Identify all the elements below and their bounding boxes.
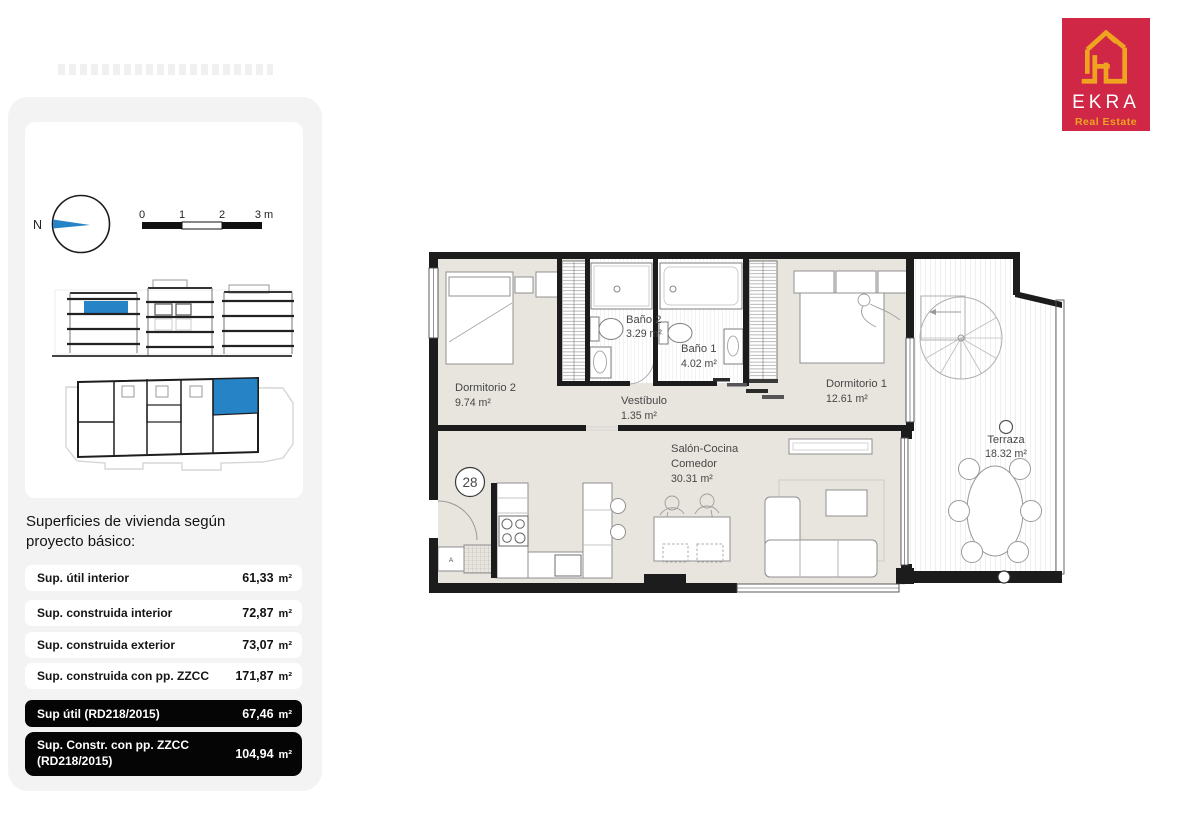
label-salon: Salón-Cocina — [671, 443, 739, 455]
svg-text:1.35 m²: 1.35 m² — [621, 410, 657, 422]
brand-name: EKRA — [1072, 92, 1140, 114]
terrace-marker — [1000, 421, 1013, 434]
headboard-cabinet — [794, 271, 834, 293]
svg-text:1: 1 — [179, 209, 185, 221]
building-elevation — [52, 280, 294, 356]
surface-row: Sup. útil interior 61,33m² — [25, 565, 302, 591]
cabinet — [536, 272, 559, 297]
console-table — [789, 439, 872, 454]
svg-text:4.02 m²: 4.02 m² — [681, 358, 717, 370]
svg-text:3 m: 3 m — [255, 209, 273, 221]
oven — [555, 555, 581, 576]
faint-watermark — [58, 64, 273, 75]
label-closet: A — [449, 557, 454, 564]
brand-tagline: Real Estate — [1075, 116, 1137, 128]
shower — [591, 263, 652, 309]
svg-text:2: 2 — [219, 209, 225, 221]
elevation-highlight-unit — [84, 301, 128, 314]
svg-text:28: 28 — [462, 475, 477, 490]
label-dorm2: Dormitorio 2 — [455, 382, 516, 394]
ekra-logo: EKRA Real Estate — [1062, 18, 1150, 131]
label-vestibulo: Vestíbulo — [621, 395, 667, 407]
toilet — [590, 317, 599, 341]
surface-row: Sup. construida con pp. ZZCC 171,87m² — [25, 663, 302, 689]
compass-n-label: N — [33, 218, 42, 232]
stool — [611, 525, 626, 540]
surface-row: Sup. construida interior 72,87m² — [25, 600, 302, 626]
compass-needle — [53, 220, 90, 229]
surface-row: Sup. construida exterior 73,07m² — [25, 632, 302, 658]
surface-row-official: Sup útil (RD218/2015) 67,46m² — [25, 700, 302, 727]
stool — [611, 499, 626, 514]
plan-key-card: N 0 1 2 3 m — [25, 122, 303, 498]
label-terraza: Terraza — [987, 434, 1025, 446]
svg-text:30.31 m²: 30.31 m² — [671, 473, 713, 485]
svg-text:3.29 m²: 3.29 m² — [626, 328, 662, 340]
ekra-house-icon — [1078, 26, 1134, 88]
scale-bar: 0 1 2 3 m — [139, 209, 273, 229]
svg-text:9.74 m²: 9.74 m² — [455, 397, 491, 409]
terrace-gate-pivot — [998, 571, 1010, 583]
svg-text:18.32 m²: 18.32 m² — [985, 448, 1027, 460]
laundry-unit — [464, 545, 494, 573]
page: N 0 1 2 3 m — [0, 0, 1200, 840]
svg-text:0: 0 — [139, 209, 145, 221]
svg-text:12.61 m²: 12.61 m² — [826, 393, 868, 405]
surface-row-official: Sup. Constr. con pp. ZZCC (RD218/2015) 1… — [25, 732, 302, 776]
nightstand — [515, 277, 533, 293]
coffee-table — [826, 490, 867, 516]
compass: N — [33, 196, 110, 253]
label-dorm1: Dormitorio 1 — [826, 378, 887, 390]
bed-double — [800, 293, 884, 363]
label-bano2: Baño 2 — [626, 314, 661, 326]
svg-text:Comedor: Comedor — [671, 458, 717, 470]
dining-table — [654, 517, 730, 561]
keyplan-highlight-unit — [213, 378, 258, 415]
surfaces-heading: Superficies de vivienda según proyecto b… — [26, 512, 266, 553]
dorm1-sliding-door — [746, 389, 768, 393]
bano1-sliding-door — [713, 378, 730, 382]
floorplan: 28 Dormitorio 2 9.74 m² Baño 2 3.29 m² B… — [425, 242, 1075, 602]
info-panel: N 0 1 2 3 m — [8, 97, 322, 791]
label-bano1: Baño 1 — [681, 343, 716, 355]
kitchen-island — [583, 483, 612, 578]
key-plan — [66, 378, 293, 470]
unit-badge: 28 — [456, 468, 485, 497]
key-graphics: N 0 1 2 3 m — [25, 122, 303, 498]
